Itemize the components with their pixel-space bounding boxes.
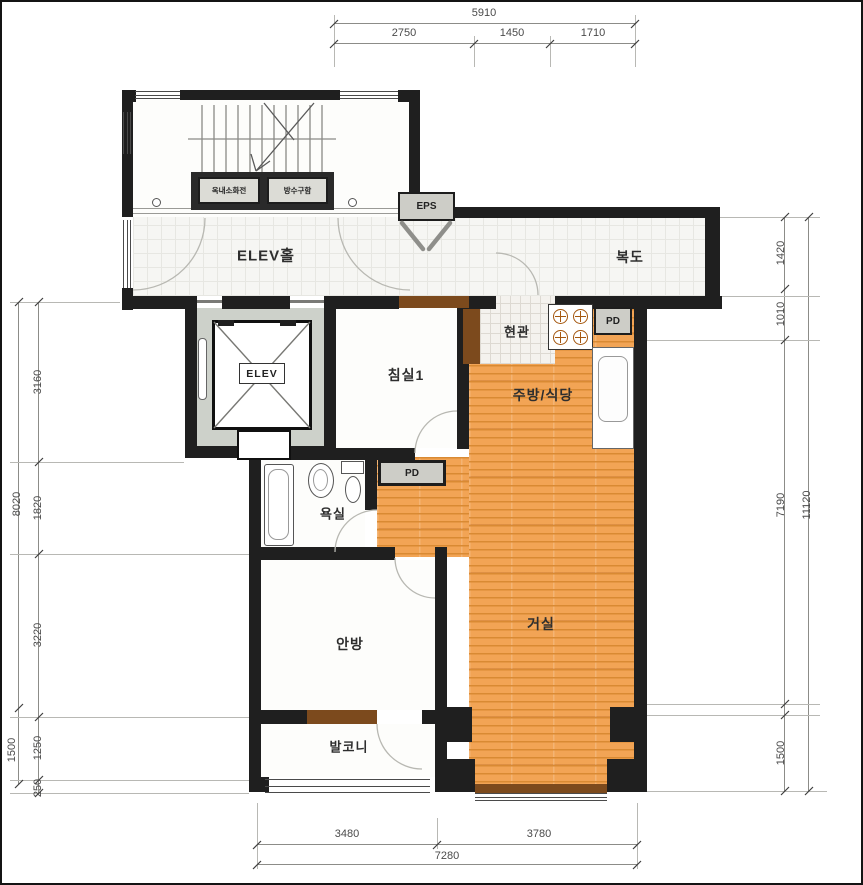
dim-left-seg: 3160 xyxy=(32,370,44,394)
dim-right-seg: 1500 xyxy=(775,741,787,765)
dim-right-seg: 1010 xyxy=(775,302,787,326)
dim-right-seg: 1420 xyxy=(775,241,787,265)
eps-door-leaves xyxy=(402,223,450,249)
elevator-label: ELEV xyxy=(246,368,277,380)
dim-top-seg: 2750 xyxy=(392,27,416,39)
floor-plan: 옥내소화전 방수구함 EPS PD PD xyxy=(0,0,863,885)
room-label-master-bedroom: 안방 xyxy=(336,634,364,654)
room-label-bedroom1: 침실1 xyxy=(388,365,425,385)
dim-left-seg: 1820 xyxy=(32,496,44,520)
dim-bottom-seg: 3480 xyxy=(335,828,359,840)
dim-left-outer: 8020 xyxy=(11,492,23,516)
elevator-label-box: ELEV xyxy=(239,363,285,384)
dim-top-seg: 1450 xyxy=(500,27,524,39)
dim-left-outer: 1500 xyxy=(6,738,18,762)
dim-top-total: 5910 xyxy=(472,7,496,19)
room-label-living-room: 거실 xyxy=(527,614,555,634)
room-label-bathroom: 욕실 xyxy=(320,504,346,523)
room-label-corridor: 복도 xyxy=(616,247,644,267)
dim-right-seg: 7190 xyxy=(775,493,787,517)
room-label-entrance: 현관 xyxy=(504,322,530,341)
dim-bottom-seg: 3780 xyxy=(527,828,551,840)
dim-right-outer: 11120 xyxy=(801,491,813,520)
room-label-kitchen-dining: 주방/식당 xyxy=(513,385,573,405)
room-label-elev-hall: ELEV홀 xyxy=(237,245,295,266)
door-arcs xyxy=(133,218,538,769)
plan-linework xyxy=(2,2,863,885)
dim-bottom-total: 7280 xyxy=(435,850,459,862)
dim-left-seg: 1250 xyxy=(32,736,44,760)
stairs-direction-arrow xyxy=(251,103,314,171)
stairs-icon xyxy=(188,105,336,172)
dim-left-seg: 250 xyxy=(32,779,44,797)
room-label-balcony: 발코니 xyxy=(330,737,369,756)
dim-top-seg: 1710 xyxy=(581,27,605,39)
dim-ticks xyxy=(15,20,813,869)
dim-left-seg: 3220 xyxy=(32,623,44,647)
